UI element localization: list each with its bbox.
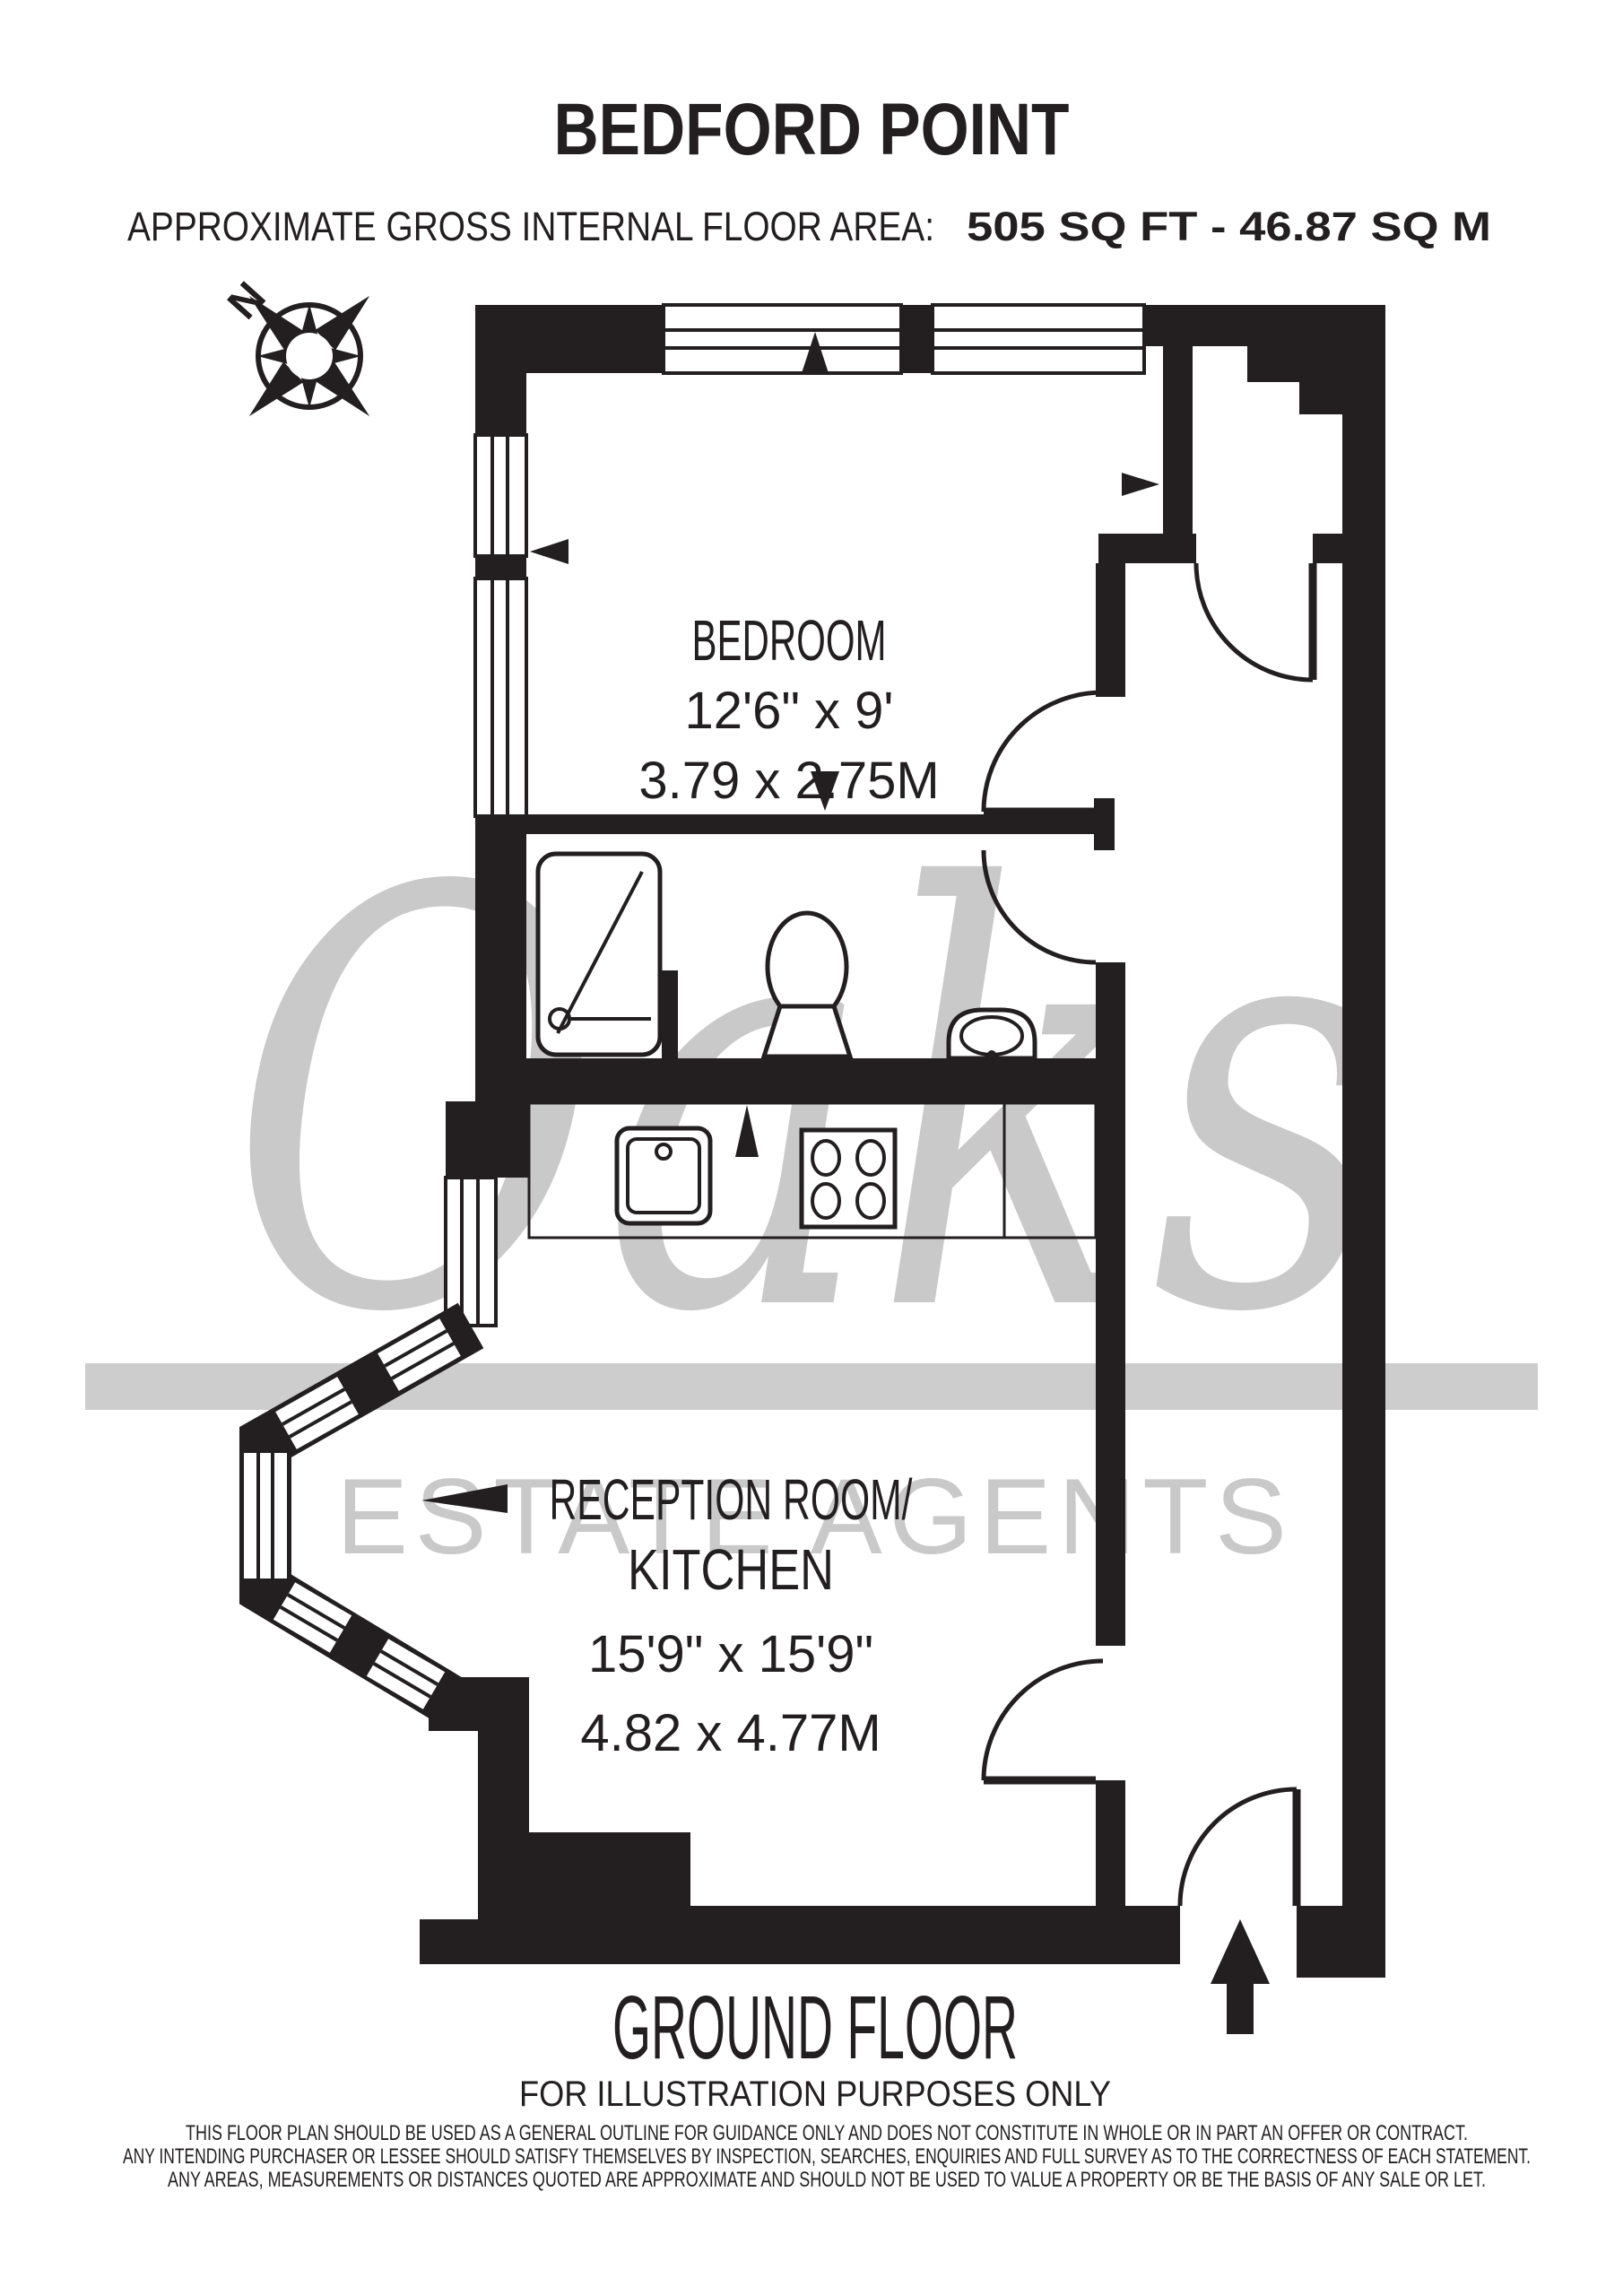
reception-imperial: 15'9" x 15'9" [588, 1625, 873, 1683]
area-label: APPROXIMATE GROSS INTERNAL FLOOR AREA: [127, 204, 934, 249]
compass-rose-icon: N [189, 236, 430, 477]
footer: GROUND FLOOR FOR ILLUSTRATION PURPOSES O… [123, 1978, 1531, 2192]
arrow-right-icon [1122, 473, 1159, 496]
area-value: 505 SQ FT - 46.87 SQ M [967, 204, 1491, 249]
reception-metric: 4.82 x 4.77M [580, 1704, 881, 1762]
hob-icon [802, 1130, 895, 1227]
toilet-icon [764, 913, 850, 1057]
header: BEDFORD POINT APPROXIMATE GROSS INTERNAL… [127, 89, 1491, 249]
basin-icon [949, 1010, 1035, 1059]
disclaimer-line-1: THIS FLOOR PLAN SHOULD BE USED AS A GENE… [186, 2121, 1468, 2145]
bedroom-window-left-upper [475, 435, 526, 556]
bedroom-imperial: 12'6" x 9' [685, 682, 894, 740]
reception-door [984, 1661, 1103, 1780]
bedroom-window-top-left [664, 305, 901, 373]
arrow-left-icon [530, 539, 568, 564]
reception-name-line1: RECEPTION ROOM/ [550, 1467, 913, 1532]
page-title: BEDFORD POINT [554, 89, 1070, 170]
bedroom-window-left-lower [475, 578, 526, 816]
entrance-door [1180, 1789, 1297, 1906]
disclaimer-line-2: ANY INTENDING PURCHASER OR LESSEE SHOULD… [123, 2144, 1531, 2169]
shower-icon [538, 854, 660, 1055]
entry-arrow-icon [1211, 1919, 1270, 2034]
bedroom-name: BEDROOM [692, 608, 887, 673]
illustration-note: FOR ILLUSTRATION PURPOSES ONLY [519, 2074, 1111, 2114]
disclaimer-line-3: ANY AREAS, MEASUREMENTS OR DISTANCES QUO… [168, 2168, 1486, 2192]
floorplan-canvas: Oaks ESTATE AGENTS BEDFORD POINT APPROXI… [0, 0, 1623, 2296]
entrance-recess-door [1196, 563, 1313, 680]
kitchen-sink-icon [617, 1128, 710, 1223]
reception-name-line2: KITCHEN [628, 1537, 834, 1602]
bay-window-top-segment [446, 1178, 496, 1326]
bedroom-metric: 3.79 x 2.75M [638, 752, 939, 810]
bedroom-window-top-right [933, 305, 1144, 373]
floorplan-page: Oaks ESTATE AGENTS BEDFORD POINT APPROXI… [0, 0, 1623, 2296]
floor-label: GROUND FLOOR [612, 1978, 1018, 2078]
